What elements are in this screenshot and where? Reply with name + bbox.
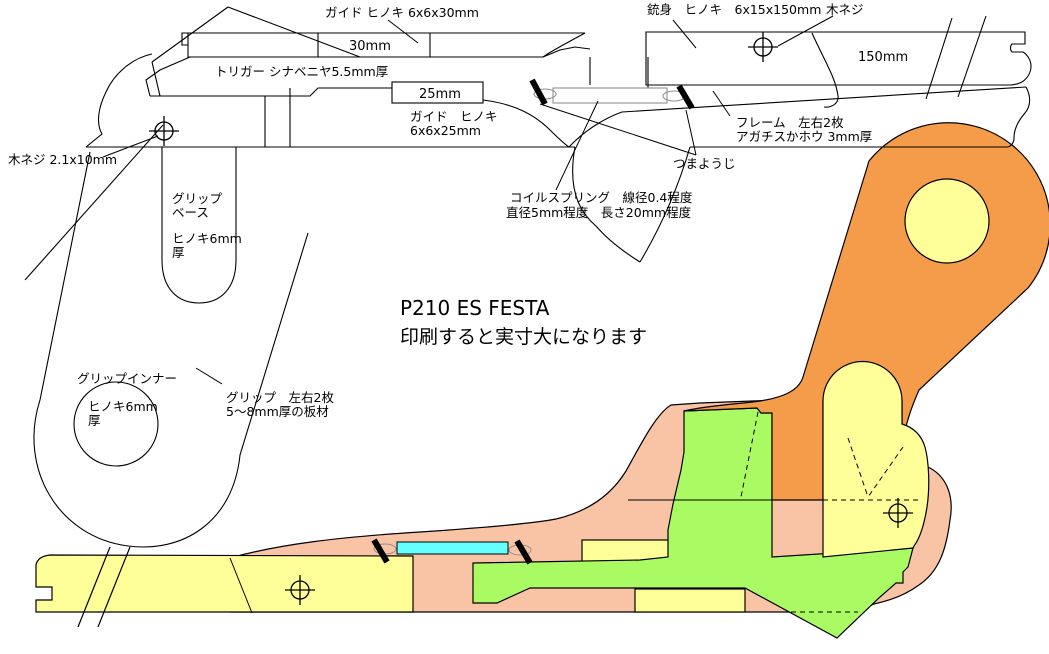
grip-base-label-4: 厚 — [172, 245, 185, 260]
frame-label-1: フレーム 左右2枚 — [736, 115, 844, 130]
barrel-outline — [646, 32, 1031, 107]
gun-plan-drawing: ガイド ヒノキ 6x6x30mm 30mm トリガー シナベニヤ5.5mm厚 2… — [0, 0, 1049, 654]
hammer-tail-outline — [543, 47, 648, 88]
print-note: 印刷すると実寸大になります — [400, 326, 647, 348]
grip-label-1: グリップ 左右2枚 — [226, 390, 334, 405]
guide-rear-dim: 25mm — [419, 87, 461, 102]
guide-front-label: ガイド ヒノキ 6x6x30mm — [325, 5, 479, 20]
wood-screw-size-label: 木ネジ 2.1x10mm — [8, 152, 117, 167]
screw-symbol — [149, 116, 179, 146]
stock-block-colored — [635, 589, 745, 612]
frame-outline-left — [86, 54, 190, 147]
grip-inner-label-3: 厚 — [88, 413, 101, 428]
barrel-dim: 150mm — [858, 50, 908, 65]
toothpick-right-outline — [679, 86, 692, 108]
grip-edge-line — [25, 125, 163, 280]
coil-spring-outline — [553, 88, 667, 103]
guide-rear-label-1: ガイド ヒノキ — [410, 109, 498, 124]
spring-label-1: コイルスプリング 線径0.4程度 — [510, 190, 693, 205]
trigger-outline — [152, 7, 360, 96]
toothpick-left-outline — [532, 80, 545, 104]
frame-top-edges — [150, 88, 392, 147]
frame-label-2: アガチスかホウ 3mm厚 — [736, 129, 872, 144]
break-marks-top — [926, 16, 986, 99]
grip-base-label-2: ベース — [172, 205, 209, 220]
screw-symbol — [748, 32, 778, 62]
barrel-label: 銃身 ヒノキ 6x15x150mm — [647, 2, 821, 17]
barrel-part-colored — [36, 555, 413, 612]
grip-label-2: 5～8mm厚の板材 — [226, 404, 329, 419]
grip-base-label-1: グリップ — [172, 191, 223, 206]
wood-screw-label: 木ネジ — [826, 2, 864, 17]
grip-base-outline — [162, 147, 236, 303]
coil-spring-colored — [397, 542, 508, 554]
spring-label-2: 直径5mm程度 長さ20mm程度 — [506, 205, 692, 220]
trigger-label: トリガー シナベニヤ5.5mm厚 — [215, 64, 388, 79]
grip-inner-label-2: ヒノキ6mm — [88, 399, 158, 414]
toothpick-label: つまようじ — [673, 156, 736, 171]
guide-front-dim: 30mm — [349, 39, 391, 54]
grip-base-label-3: ヒノキ6mm — [172, 231, 242, 246]
grip-inner-label-1: グリップインナー — [77, 371, 177, 386]
annotations: ガイド ヒノキ 6x6x30mm 30mm トリガー シナベニヤ5.5mm厚 2… — [8, 2, 908, 428]
guide-rear-label-2: 6x6x25mm — [410, 123, 481, 138]
grip-inner-colored — [905, 179, 989, 263]
grip-inner-hole-outline — [74, 382, 158, 466]
model-title: P210 ES FESTA — [400, 296, 550, 320]
blueprint-page: ガイド ヒノキ 6x6x30mm 30mm トリガー シナベニヤ5.5mm厚 2… — [0, 0, 1049, 654]
grip-outline — [34, 152, 308, 547]
